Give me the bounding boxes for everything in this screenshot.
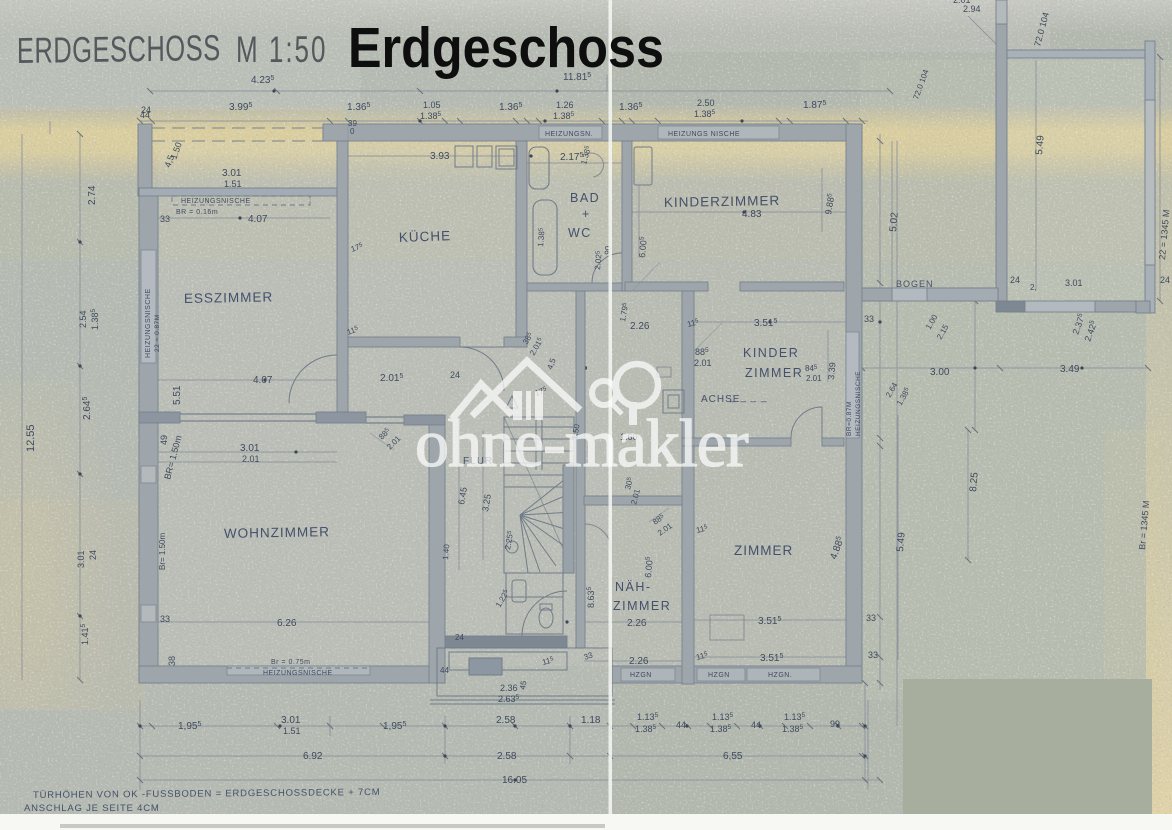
svg-text:2.01: 2.01 xyxy=(806,374,822,383)
svg-text:HZGN: HZGN xyxy=(708,672,730,679)
svg-text:3.01: 3.01 xyxy=(222,168,242,179)
svg-text:WC: WC xyxy=(568,226,592,240)
svg-text:Br= 1.50m: Br= 1.50m xyxy=(158,533,167,570)
svg-text:HEIZUNGSNISCHE: HEIZUNGSNISCHE xyxy=(181,198,251,205)
svg-text:1.51: 1.51 xyxy=(224,179,242,189)
svg-text:44: 44 xyxy=(676,720,686,730)
svg-text:ZIMMER: ZIMMER xyxy=(734,543,793,558)
svg-text:KÜCHE: KÜCHE xyxy=(399,228,452,245)
svg-text:6,55: 6,55 xyxy=(723,751,743,762)
svg-text:99: 99 xyxy=(830,719,840,729)
svg-text:24: 24 xyxy=(450,370,460,380)
svg-text:2.58: 2.58 xyxy=(496,715,516,726)
svg-text:24: 24 xyxy=(141,105,151,115)
svg-text:1.26: 1.26 xyxy=(556,100,574,110)
svg-text:HEIZUNGSNISCHE: HEIZUNGSNISCHE xyxy=(145,288,152,358)
svg-text:44: 44 xyxy=(440,666,449,675)
svg-text:2.54: 2.54 xyxy=(78,310,88,328)
svg-text:HEIZUNGSNISCHE: HEIZUNGSNISCHE xyxy=(855,371,862,436)
svg-text:1.05: 1.05 xyxy=(423,100,441,110)
svg-text:24: 24 xyxy=(88,550,98,560)
svg-text:22 = 0.87M: 22 = 0.87M xyxy=(154,314,161,352)
svg-text:1.18: 1.18 xyxy=(581,715,601,726)
svg-text:ERDGESCHOSS: ERDGESCHOSS xyxy=(17,28,221,71)
svg-text:ESSZIMMER: ESSZIMMER xyxy=(184,289,274,306)
svg-text:3.00: 3.00 xyxy=(930,367,950,378)
svg-text:HEIZUNGSN.: HEIZUNGSN. xyxy=(545,131,593,138)
svg-text:2.01: 2.01 xyxy=(242,454,260,464)
svg-text:6.26: 6.26 xyxy=(277,618,297,629)
svg-text:5.51: 5.51 xyxy=(172,385,183,405)
svg-text:2.26: 2.26 xyxy=(627,618,647,629)
svg-text:_ _ _ _: _ _ _ _ xyxy=(729,392,768,403)
svg-text:BR=0.87M: BR=0.87M xyxy=(846,401,853,436)
svg-text:2.26: 2.26 xyxy=(630,321,650,332)
svg-text:Erdgeschoss: Erdgeschoss xyxy=(348,16,664,80)
svg-text:3.01: 3.01 xyxy=(76,550,86,568)
svg-text:33: 33 xyxy=(160,614,170,624)
svg-text:WOHNZIMMER: WOHNZIMMER xyxy=(224,524,330,541)
svg-text:5.02: 5.02 xyxy=(888,211,901,232)
svg-text:33: 33 xyxy=(866,613,876,623)
svg-text:24: 24 xyxy=(1010,275,1020,285)
svg-text:ohne-makler: ohne-makler xyxy=(415,405,749,481)
svg-text:4.07: 4.07 xyxy=(248,214,268,225)
svg-text:Br = 0.75m: Br = 0.75m xyxy=(271,659,310,666)
svg-text:49: 49 xyxy=(159,435,169,445)
svg-text:HZGN.: HZGN. xyxy=(768,672,792,679)
svg-text:ANSCHLAG JE SEITE 4CM: ANSCHLAG JE SEITE 4CM xyxy=(24,803,160,814)
svg-text:8.25: 8.25 xyxy=(968,471,981,492)
svg-text:16.05: 16.05 xyxy=(502,775,527,786)
svg-text:KINDERZIMMER: KINDERZIMMER xyxy=(664,193,780,210)
svg-text:1.51: 1.51 xyxy=(283,726,301,736)
svg-text:38: 38 xyxy=(167,656,177,666)
svg-text:5.49: 5.49 xyxy=(1034,134,1047,155)
svg-text:BOGEN: BOGEN xyxy=(896,279,934,289)
svg-text:M 1:50: M 1:50 xyxy=(236,28,327,70)
svg-text:3.49: 3.49 xyxy=(1060,364,1080,375)
svg-text:2.58: 2.58 xyxy=(497,751,517,762)
svg-text:3.01: 3.01 xyxy=(281,715,301,726)
svg-text:ZIMMER: ZIMMER xyxy=(613,599,671,613)
svg-text:0: 0 xyxy=(350,127,355,136)
svg-text:KINDER: KINDER xyxy=(743,346,799,360)
svg-text:2.74: 2.74 xyxy=(87,185,98,205)
svg-text:4.07: 4.07 xyxy=(253,375,273,386)
svg-text:12.55: 12.55 xyxy=(25,424,37,452)
svg-text:3.01: 3.01 xyxy=(240,443,260,454)
svg-text:3.93: 3.93 xyxy=(430,151,450,162)
svg-text:+: + xyxy=(582,207,591,221)
svg-text:2.01: 2.01 xyxy=(694,358,712,368)
svg-text:4.83: 4.83 xyxy=(742,209,762,220)
svg-text:HZGN: HZGN xyxy=(630,672,652,679)
svg-text:1.40: 1.40 xyxy=(441,543,451,560)
svg-text:2.50: 2.50 xyxy=(697,98,715,108)
svg-text:HEIZUNGS NISCHE: HEIZUNGS NISCHE xyxy=(668,131,740,138)
svg-text:2,: 2, xyxy=(1030,283,1037,292)
svg-text:33: 33 xyxy=(864,314,874,324)
svg-text:2.94: 2.94 xyxy=(963,4,981,14)
svg-text:2.01: 2.01 xyxy=(953,0,971,5)
svg-text:2.36: 2.36 xyxy=(500,683,518,693)
svg-text:NÄH-: NÄH- xyxy=(615,580,652,594)
svg-text:33: 33 xyxy=(868,650,878,660)
svg-text:33: 33 xyxy=(160,214,170,224)
svg-text:BAD: BAD xyxy=(570,191,600,205)
svg-text:44: 44 xyxy=(751,720,761,730)
svg-text:3.39: 3.39 xyxy=(826,362,837,380)
svg-text:24: 24 xyxy=(1160,275,1170,285)
svg-text:6.92: 6.92 xyxy=(303,751,323,762)
svg-text:3.01: 3.01 xyxy=(1065,278,1083,288)
svg-text:ZIMMER: ZIMMER xyxy=(745,366,803,380)
svg-text:24: 24 xyxy=(455,633,464,642)
svg-text:2.26: 2.26 xyxy=(629,656,649,667)
svg-text:HEIZUNGSNISCHE: HEIZUNGSNISCHE xyxy=(263,670,333,677)
svg-text:5.49: 5.49 xyxy=(895,531,908,552)
svg-text:BR = 0.16m: BR = 0.16m xyxy=(176,209,218,216)
